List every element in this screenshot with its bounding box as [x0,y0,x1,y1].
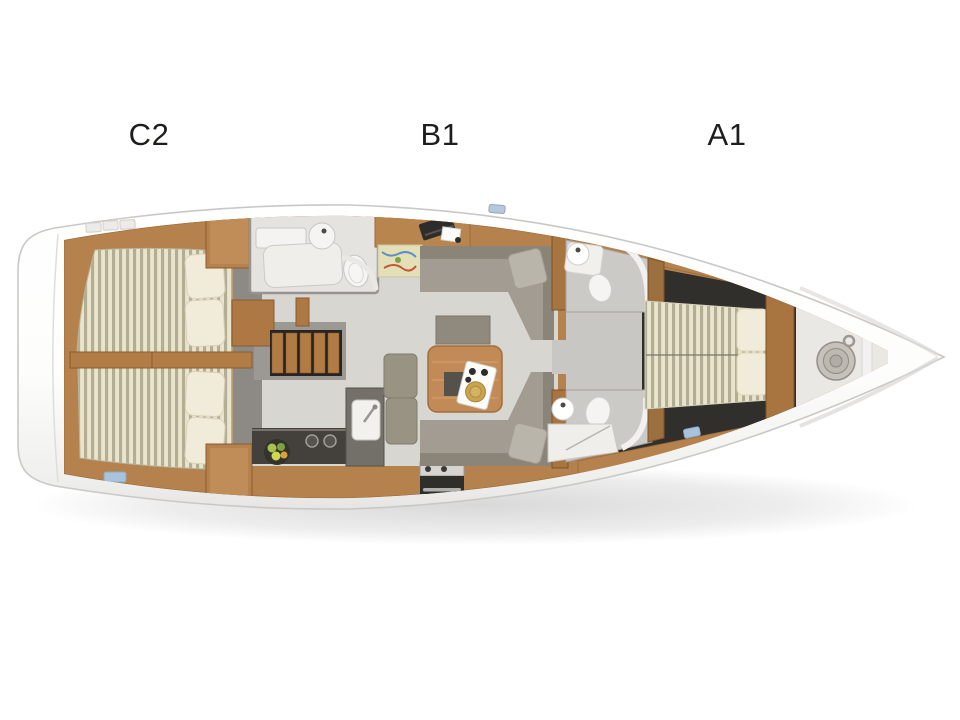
stern-deck-vent [86,223,101,233]
mid-shower-bench [263,242,343,288]
stairs-side-cabinet [232,300,274,346]
stern-deck-vent [103,221,118,231]
coachroof-hatch-blue [489,204,506,213]
rode-coil-inner [830,355,842,367]
yacht-floorplan-drawing [0,0,960,720]
mid-bathroom-sink-drain [322,229,327,234]
pillow [185,371,225,417]
salon-stool [384,354,417,398]
stair-step [300,333,311,373]
bulkhead-doorway-floor [552,340,568,374]
chart-map [378,245,422,277]
salon-stool [386,398,417,444]
stair-step [272,333,283,373]
fruit [272,452,281,461]
mid-bathroom [250,211,378,293]
cooktop-burner [324,435,336,447]
stair-step [314,333,325,373]
oven-knob [425,466,431,472]
forward-berth [645,290,794,422]
salon-bench [436,316,490,344]
oven [420,462,464,494]
pillow [737,353,768,395]
stair-step [328,333,339,373]
forward-bathroom-top-sink-drain [576,248,581,253]
forward-bathroom-bottom-sink [552,398,574,420]
cooktop-burner [306,435,318,447]
pillow [185,299,225,347]
forward-vestibule-floor [566,310,642,392]
interior-deck [64,208,888,504]
stair-step [286,333,297,373]
aft-nightstand-bottom-surface [210,448,248,500]
aft-hatch-blue [104,472,126,482]
nav-instrument [455,237,461,243]
galley-faucet-base [373,405,378,410]
fruit-bowl [264,439,290,465]
stairs-handrail [296,298,309,326]
fruit [277,443,285,451]
oven-handle [423,488,461,492]
stern-deck-vent [120,220,135,230]
aft-cabin [70,208,262,504]
salon-table [428,346,502,412]
fruit [281,452,288,459]
forward-berth-bulkhead [766,290,794,422]
yacht-floorplan-canvas: C2 B1 A1 [0,0,960,720]
mid-bathroom-sink [309,223,335,249]
pillow [737,309,768,351]
chart-map-mark [395,257,401,263]
fruit [268,444,277,453]
oven-knob [441,466,447,472]
forward-bathroom-bottom-sink-drain [561,403,566,408]
aft-beds-divider [70,352,252,368]
forward-bathroom-top-sink [567,243,589,265]
